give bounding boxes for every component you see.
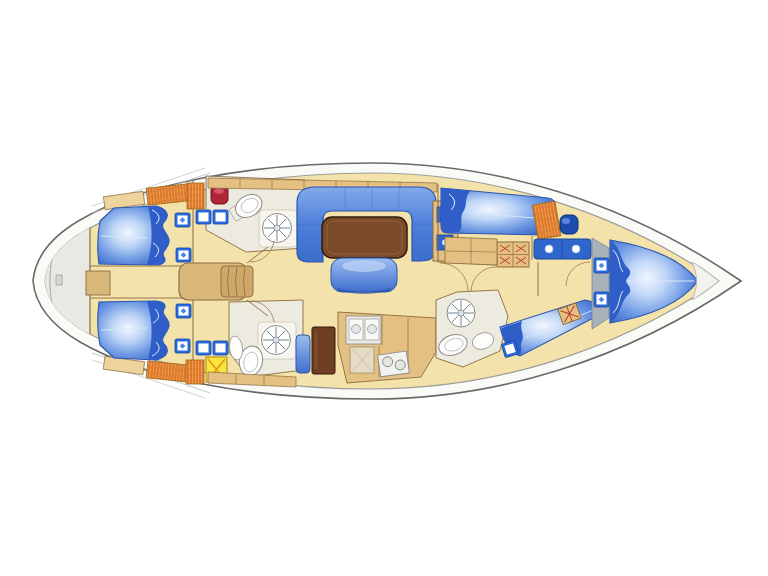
shower-drain-wheel	[262, 326, 291, 355]
deck-hatch	[175, 339, 190, 353]
locker-orange-block	[186, 360, 204, 384]
wheel-hub	[458, 310, 464, 316]
vanity-two-sinks	[534, 239, 591, 259]
deck-hatch	[176, 304, 191, 318]
deck-hatch	[594, 292, 609, 307]
stool	[331, 258, 397, 293]
shower-drain-wheel	[447, 299, 475, 327]
washbasin-red-highlight	[214, 188, 224, 194]
double-sink	[346, 316, 381, 344]
vanity-counter	[534, 239, 591, 259]
steps	[221, 266, 253, 297]
shower-drain-wheel	[263, 214, 292, 243]
refrigerator-brown	[312, 327, 335, 374]
sink-drain	[368, 325, 377, 334]
washbasin-navy-highlight	[562, 218, 570, 224]
hatch-glass	[216, 344, 226, 353]
dining-table	[322, 217, 407, 258]
hatch-glass	[199, 344, 209, 353]
galley-cabinet	[350, 347, 374, 373]
deck-hatch	[175, 213, 190, 227]
wood-block	[86, 271, 110, 295]
wheel-hub	[273, 337, 279, 343]
deck-hatch	[594, 258, 609, 273]
sink-drain	[352, 325, 361, 334]
wheel-hub	[274, 225, 280, 231]
hatch-glass	[199, 213, 209, 222]
stove-two-burner	[378, 351, 410, 377]
vanity-sink	[572, 245, 580, 253]
yacht-floor-plan	[0, 0, 768, 576]
drawer-unit-cross-hatch	[497, 242, 529, 267]
deck-hatch	[176, 248, 191, 262]
floor-plan-canvas	[0, 0, 768, 576]
washbasin-navy	[560, 215, 578, 234]
gray-panel	[592, 238, 609, 329]
vanity-sink	[545, 245, 553, 253]
swim-platform	[40, 170, 90, 392]
platform-area-curved	[46, 180, 90, 382]
locker-orange-vertical	[187, 183, 204, 209]
transom-step	[56, 275, 62, 285]
hatch-glass	[216, 213, 226, 222]
stool-highlight	[342, 260, 386, 272]
locker-blue	[296, 335, 310, 373]
